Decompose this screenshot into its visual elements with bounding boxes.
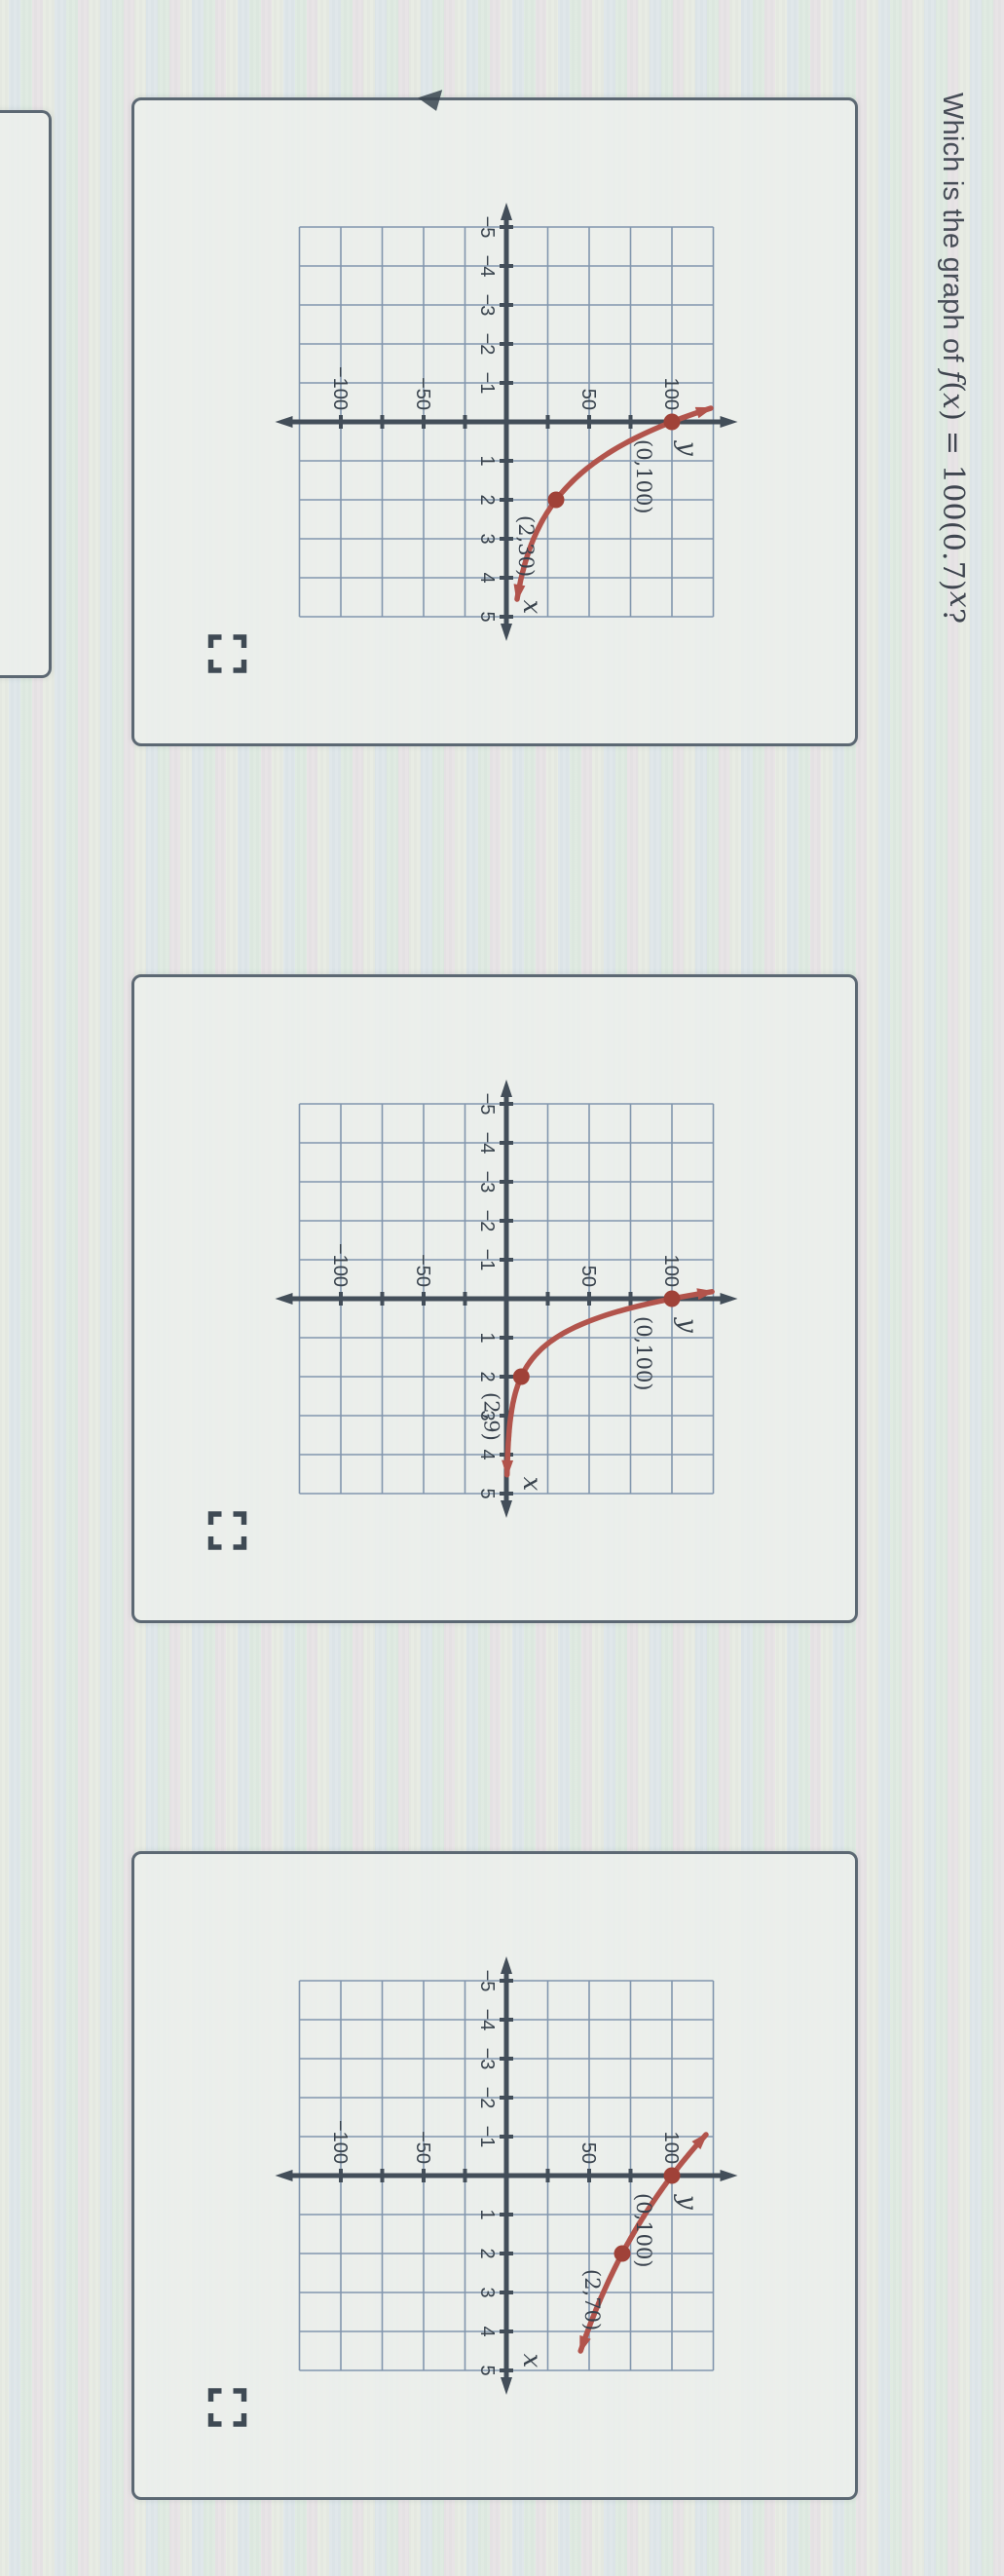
x-tick-label: −5 [476,216,498,239]
x-tick-label: 3 [476,2287,498,2297]
y-axis-up-arrow [721,2170,738,2181]
option-card-1[interactable]: −5−4−3−2−11234510050−50−100yx(0,100)(2,3… [131,97,858,746]
x-tick-label: −5 [476,1093,498,1116]
x-tick-label: −4 [476,1132,498,1155]
option-card-3[interactable]: −5−4−3−2−11234510050−50−100yx(0,100)(2,7… [131,1851,858,2500]
x-tick-label: −5 [476,1970,498,1992]
y-tick-label: 100 [660,378,682,410]
x-tick-label: 4 [476,1449,498,1459]
y-tick-label: 50 [577,1266,599,1287]
x-tick-label: −2 [476,2087,498,2109]
curve-lower-arrow [502,1460,513,1478]
x-axis-letter: x [517,600,546,615]
y-tick-label: −50 [412,2131,433,2164]
x-axis-right-arrow [501,2377,512,2395]
x-tick-label: −2 [476,333,498,356]
curve-upper-arrow [695,407,714,418]
option-graph-3: −5−4−3−2−11234510050−50−100yx(0,100)(2,7… [134,1854,855,2497]
y-tick-label: 100 [660,2132,682,2164]
y-tick-label: −100 [329,366,351,410]
math-x: x [936,393,970,409]
x-tick-label: −3 [476,294,498,317]
x-axis-letter: x [517,1477,546,1492]
point-label: (2,30) [514,515,538,577]
math-body: ) = 100(0.7) [936,409,970,591]
x-tick-label: −1 [476,372,498,395]
y-tick-label: −50 [412,377,433,410]
x-tick-label: 3 [476,533,498,544]
point-label: (0,100) [632,1316,655,1391]
option-card-2[interactable]: −5−4−3−2−11234510050−50−100yx(0,100)(2,9… [131,974,858,1623]
x-axis-right-arrow [501,624,512,641]
x-tick-label: −1 [476,2126,498,2148]
x-tick-label: 5 [476,611,498,622]
selection-brackets-icon[interactable] [211,637,244,670]
y-axis-letter: y [673,2194,702,2210]
data-point [614,2246,631,2262]
point-label: (0,100) [632,439,655,514]
x-tick-label: 1 [476,455,498,466]
data-point [664,1291,681,1307]
x-tick-label: 2 [476,494,498,505]
x-tick-label: −1 [476,1249,498,1271]
data-point [664,2168,681,2184]
y-axis-up-arrow [721,416,738,428]
y-tick-label: −50 [412,1254,433,1287]
y-tick-label: 100 [660,1255,682,1287]
y-axis-down-arrow [276,1293,293,1305]
question-mark: ? [936,608,970,624]
option-graph-2: −5−4−3−2−11234510050−50−100yx(0,100)(2,9… [134,977,855,1620]
y-axis-up-arrow [721,1293,738,1305]
x-tick-label: −2 [476,1210,498,1232]
question-prefix: Which is the graph of [937,93,968,370]
x-axis-left-arrow [501,1080,512,1097]
quiz-page: Which is the graph of f(x) = 100(0.7)x? … [0,0,1004,2576]
math-exponent: x [943,591,977,608]
math-paren: ( [936,381,970,393]
x-tick-label: −3 [476,1171,498,1193]
x-tick-label: −4 [476,255,498,278]
x-tick-label: 1 [476,2209,498,2219]
math-f: f [936,370,970,381]
point-label: (0,100) [632,2193,655,2268]
option-card-4-partial[interactable] [0,110,52,678]
x-tick-label: 5 [476,2365,498,2375]
x-tick-label: 4 [476,572,498,583]
x-axis-letter: x [517,2354,546,2368]
data-point [513,1369,530,1385]
axes [282,1963,731,2388]
y-axis-down-arrow [276,2170,293,2181]
y-tick-label: 50 [577,389,599,410]
x-tick-label: −3 [476,2048,498,2070]
x-axis-right-arrow [501,1500,512,1518]
data-point [664,414,681,431]
y-axis-letter: y [673,440,702,456]
x-axis-left-arrow [501,1956,512,1974]
y-axis-down-arrow [276,416,293,428]
x-tick-label: 2 [476,2248,498,2258]
x-tick-label: 1 [476,1332,498,1343]
point-label: (2,9) [479,1392,502,1441]
axes [282,209,731,634]
y-tick-label: −100 [329,1243,351,1287]
x-tick-label: 2 [476,1371,498,1382]
y-axis-letter: y [673,1317,702,1333]
option-graph-1: −5−4−3−2−11234510050−50−100yx(0,100)(2,3… [134,100,855,743]
selection-brackets-icon[interactable] [211,2391,244,2424]
data-point [548,492,565,509]
x-tick-label: 5 [476,1488,498,1498]
x-axis-left-arrow [501,203,512,220]
question-text: Which is the graph of f(x) = 100(0.7)x? [928,93,977,624]
x-tick-label: −4 [476,2009,498,2031]
curve [517,408,711,599]
x-tick-label: 4 [476,2326,498,2336]
selection-brackets-icon[interactable] [211,1514,244,1547]
point-label: (2,70) [580,2269,604,2330]
y-tick-label: −100 [329,2120,351,2164]
y-tick-label: 50 [577,2142,599,2164]
